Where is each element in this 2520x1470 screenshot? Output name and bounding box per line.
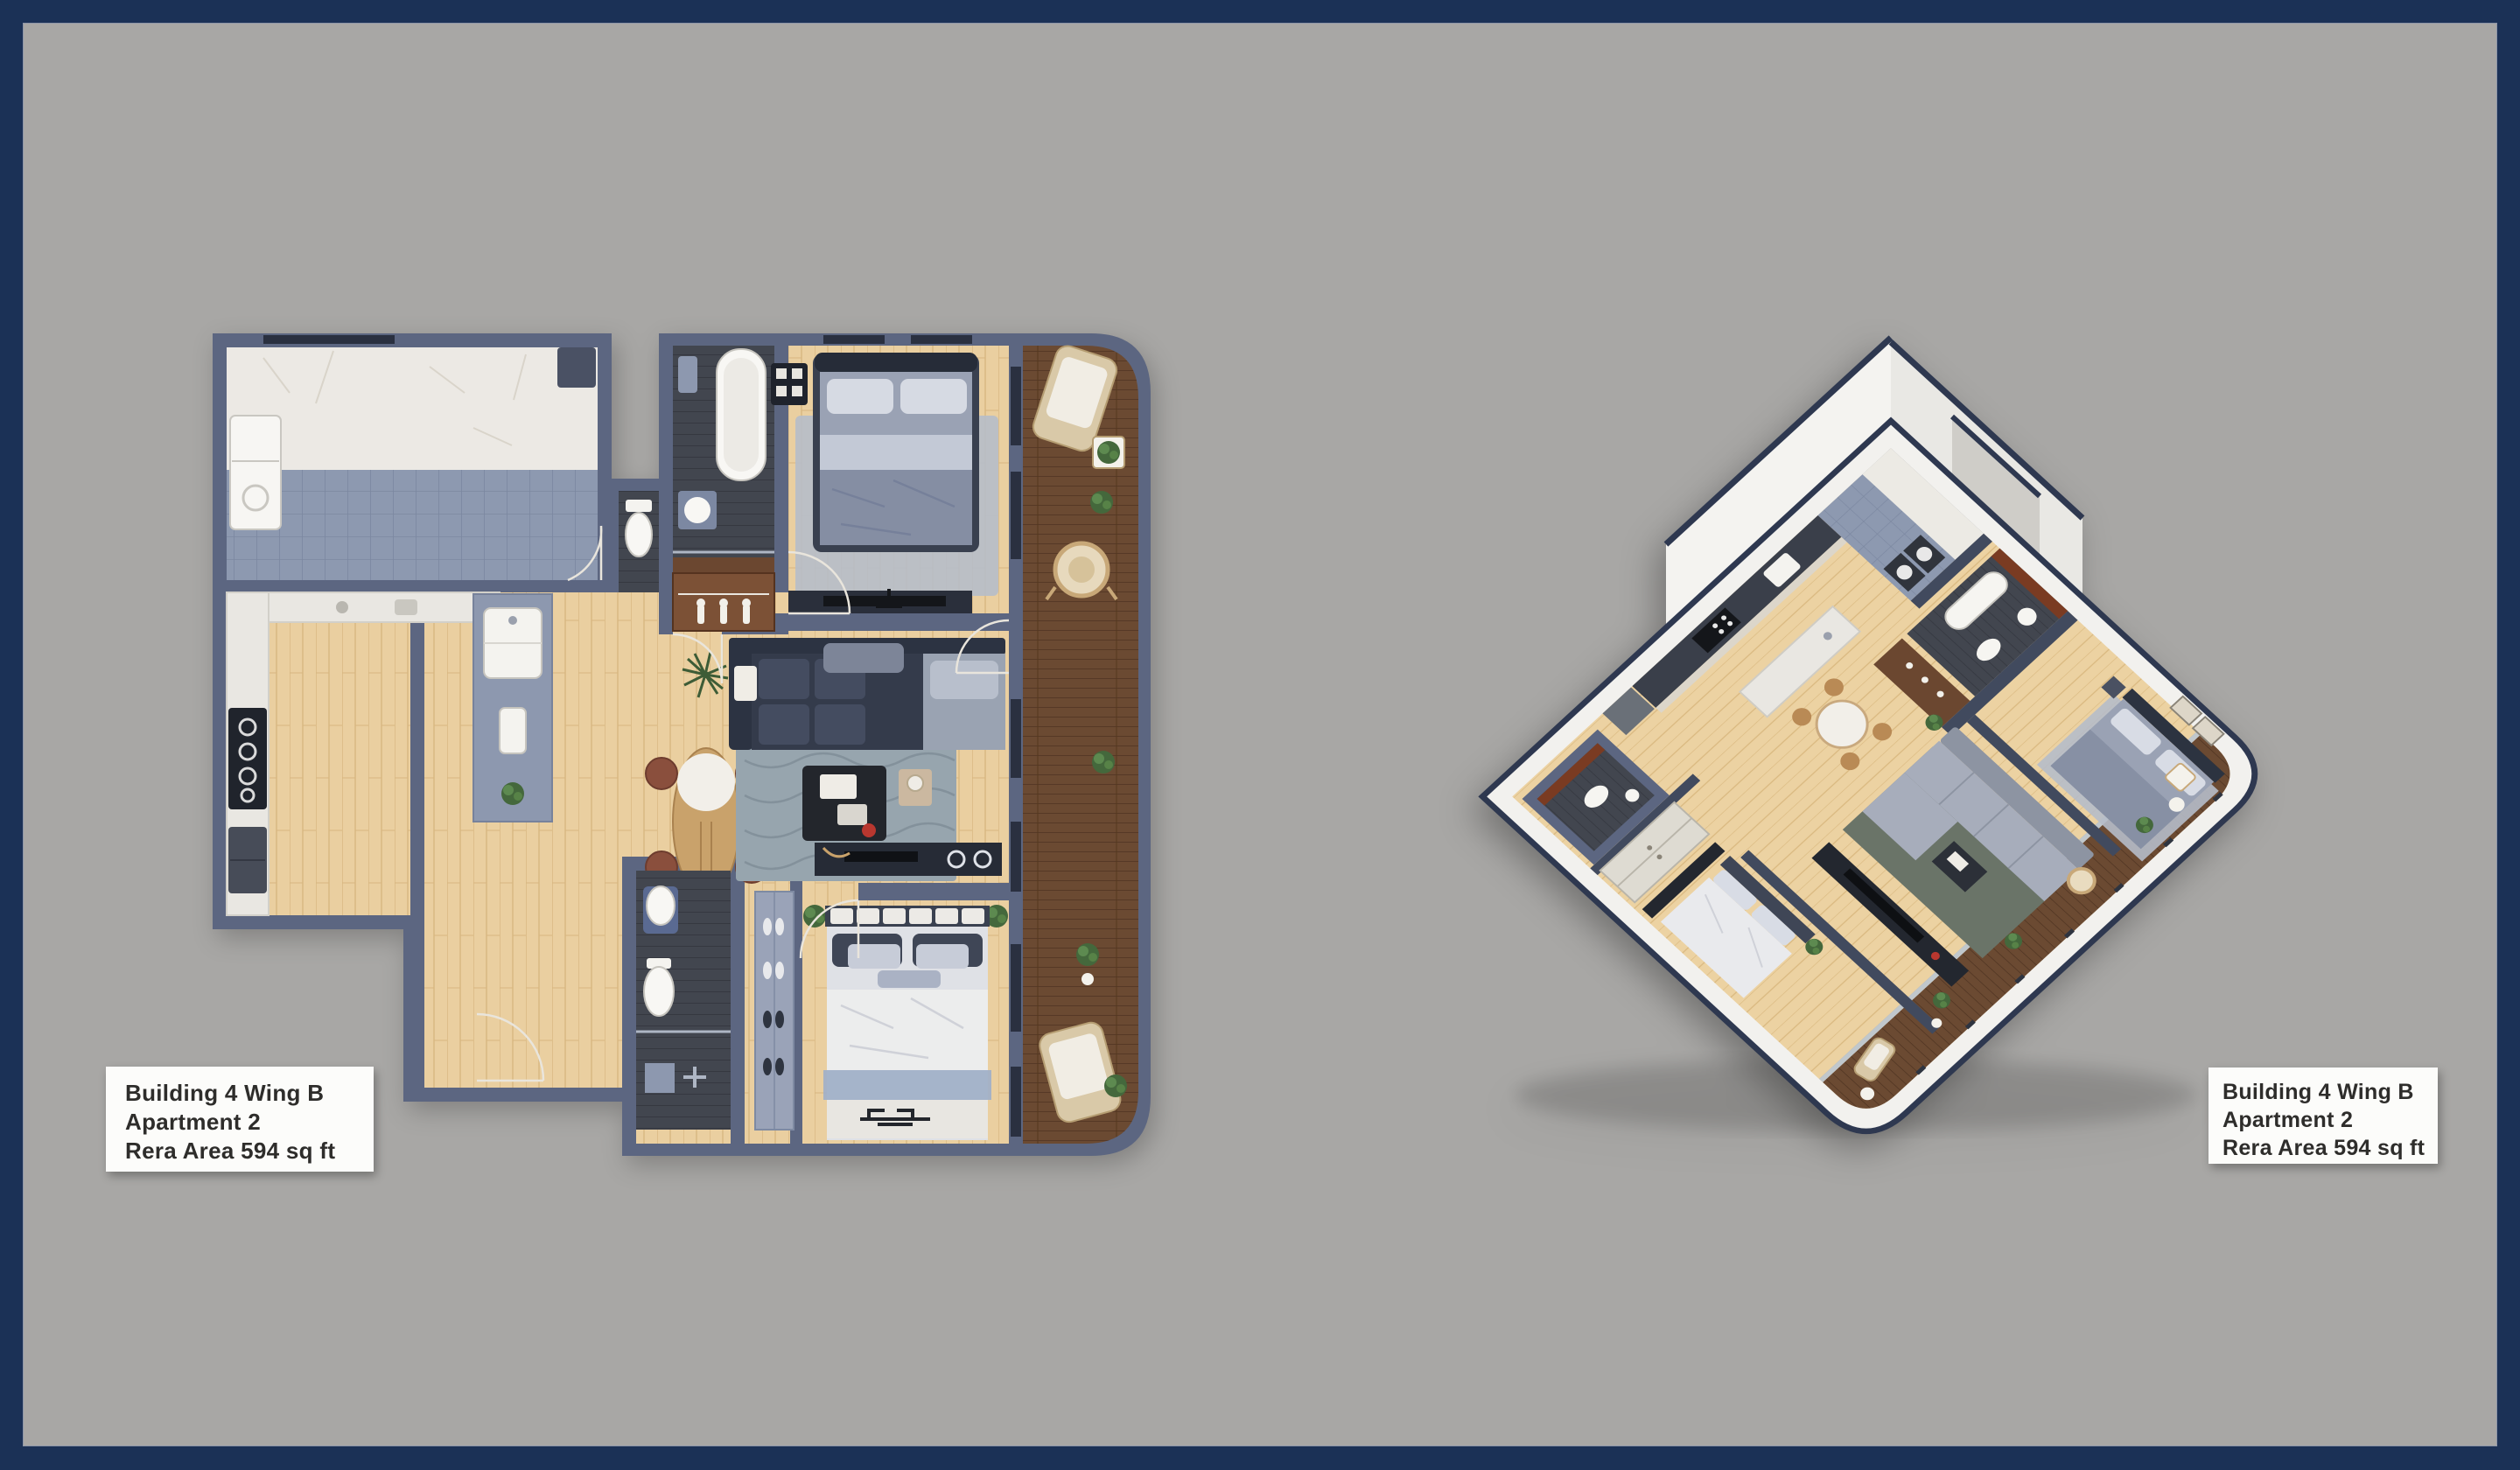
annotation-right: Building 4 Wing B Apartment 2 Rera Area … [2208,1067,2438,1164]
shoe-closet [755,892,794,1130]
floor-plan-2d [211,332,1165,1167]
bathroom1-tile-floor [227,470,598,580]
bathroom1-marble-floor [227,347,598,470]
powder-toilet [626,500,652,556]
kitchen-top-counter [269,592,500,622]
basin2 [647,886,675,925]
annotation-left: Building 4 Wing B Apartment 2 Rera Area … [106,1067,374,1172]
headboard [815,353,977,372]
bedroom2-dresser [815,843,1002,876]
dining-table-top [677,753,735,811]
sofa-side-book [734,666,757,701]
building-line: Building 4 Wing B [125,1079,374,1108]
apartment-line: Apartment 2 [2222,1106,2438,1134]
pillow [827,379,893,414]
accent-pillow [878,970,941,988]
pillow2-light [848,944,900,969]
washing-machine [230,416,281,529]
sofa-throw [823,643,904,673]
floor-plan-3d-isometric [1462,325,2302,1165]
pillow2-light [916,944,969,969]
bedroom2 [803,905,1008,1140]
shower-head [678,356,697,393]
slide-canvas: Building 4 Wing B Apartment 2 Rera Area … [23,23,2497,1446]
rera-area-line: Rera Area 594 sq ft [125,1137,374,1165]
toilet2 [644,967,674,1016]
rera-area-line: Rera Area 594 sq ft [2222,1134,2438,1162]
pillow [900,379,967,414]
television2 [844,851,918,862]
isometric-floor [1482,421,2274,1150]
brochure-slide: Building 4 Wing B Apartment 2 Rera Area … [0,0,2520,1470]
shower2 [645,1063,675,1093]
master-bedroom [771,353,998,613]
wardrobe [673,557,774,631]
folded-sheet [820,435,972,472]
table-lamp [907,775,923,791]
duvet2 [827,990,988,1070]
red-mug [862,823,876,837]
apartment-line: Apartment 2 [125,1108,374,1137]
shower-unit [557,347,596,388]
sofa-cushion [930,661,998,699]
bathroom2 [636,871,731,1130]
foot-rug [823,1070,991,1100]
building-line: Building 4 Wing B [2222,1078,2438,1106]
